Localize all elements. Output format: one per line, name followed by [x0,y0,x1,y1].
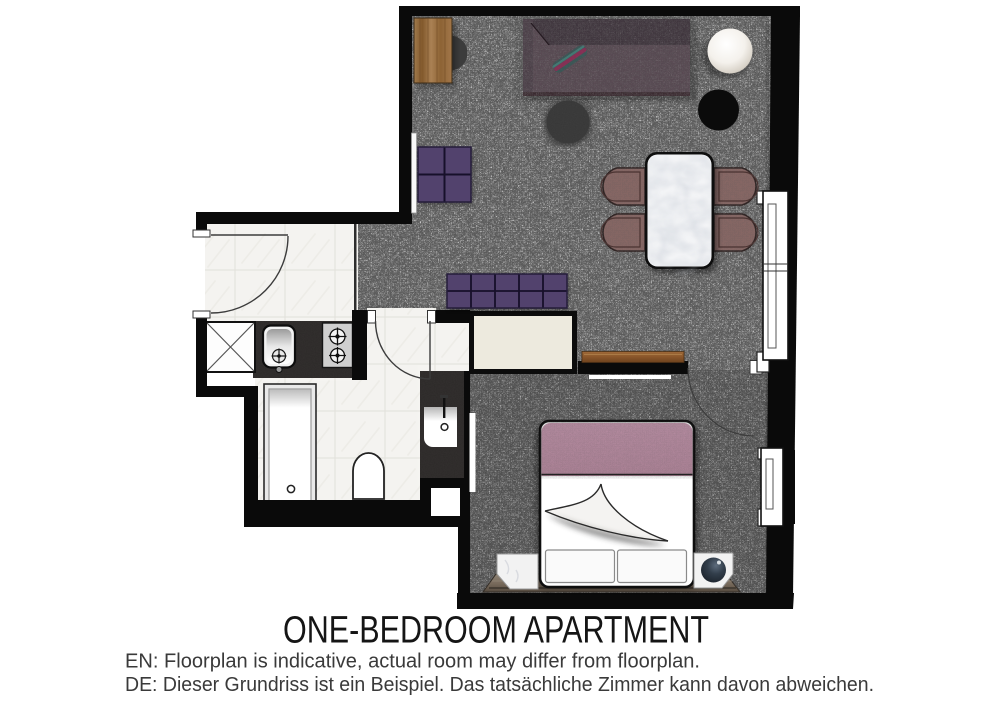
svg-text:ONE-BEDROOM APARTMENT: ONE-BEDROOM APARTMENT [283,610,709,652]
svg-text:EN: Floorplan is indicative, a: EN: Floorplan is indicative, actual room… [125,651,700,673]
svg-text:DE: Dieser Grundriss ist ein B: DE: Dieser Grundriss ist ein Beispiel. D… [125,674,874,696]
